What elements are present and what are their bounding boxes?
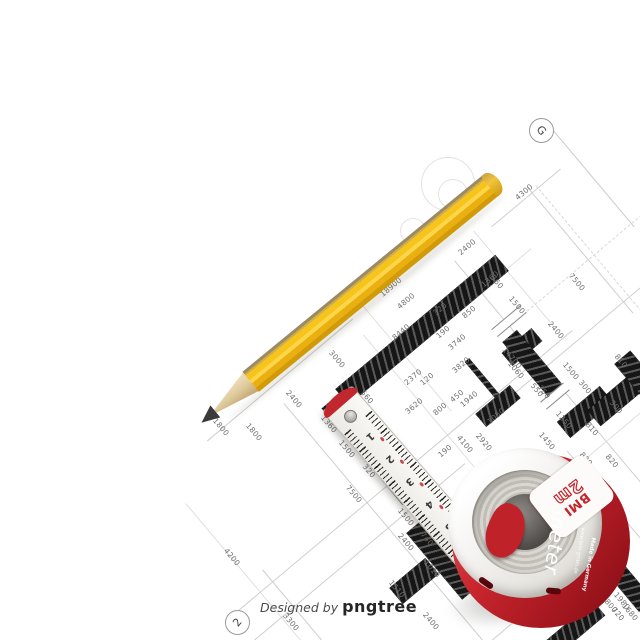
shell-slot [546, 587, 561, 594]
dimension-label: 190 [436, 443, 453, 460]
grid-bubble-2-label: 2 [230, 616, 244, 630]
dimension-label: 4800 [395, 291, 416, 311]
watermark: Designed by pngtree [260, 597, 417, 616]
dimension-label: 1800 [244, 421, 264, 442]
watermark-prefix: Designed by [260, 600, 342, 615]
grid-bubble-g-label: G [534, 123, 549, 138]
grid-line [553, 131, 634, 227]
watermark-brand: pngtree [342, 597, 417, 616]
grid-bubble-2: 2 [225, 610, 250, 635]
dimension-label: 4100 [455, 433, 475, 454]
dimension-label: 7500 [567, 271, 587, 292]
dashed-line [535, 185, 640, 339]
dimension-label: 1500 [561, 360, 581, 381]
dimension-label: 360 [489, 273, 506, 290]
dimension-label: 2920 [474, 431, 494, 452]
dimension-label: 3740 [446, 332, 467, 352]
dimension-label: 4200 [222, 546, 242, 567]
dimension-label: 3000 [327, 348, 347, 369]
grid-bubble-g: G [529, 118, 554, 143]
photo-canvas: G 2 430024001360189004800320850844019037… [0, 0, 640, 640]
dimension-label: 2400 [456, 237, 477, 257]
